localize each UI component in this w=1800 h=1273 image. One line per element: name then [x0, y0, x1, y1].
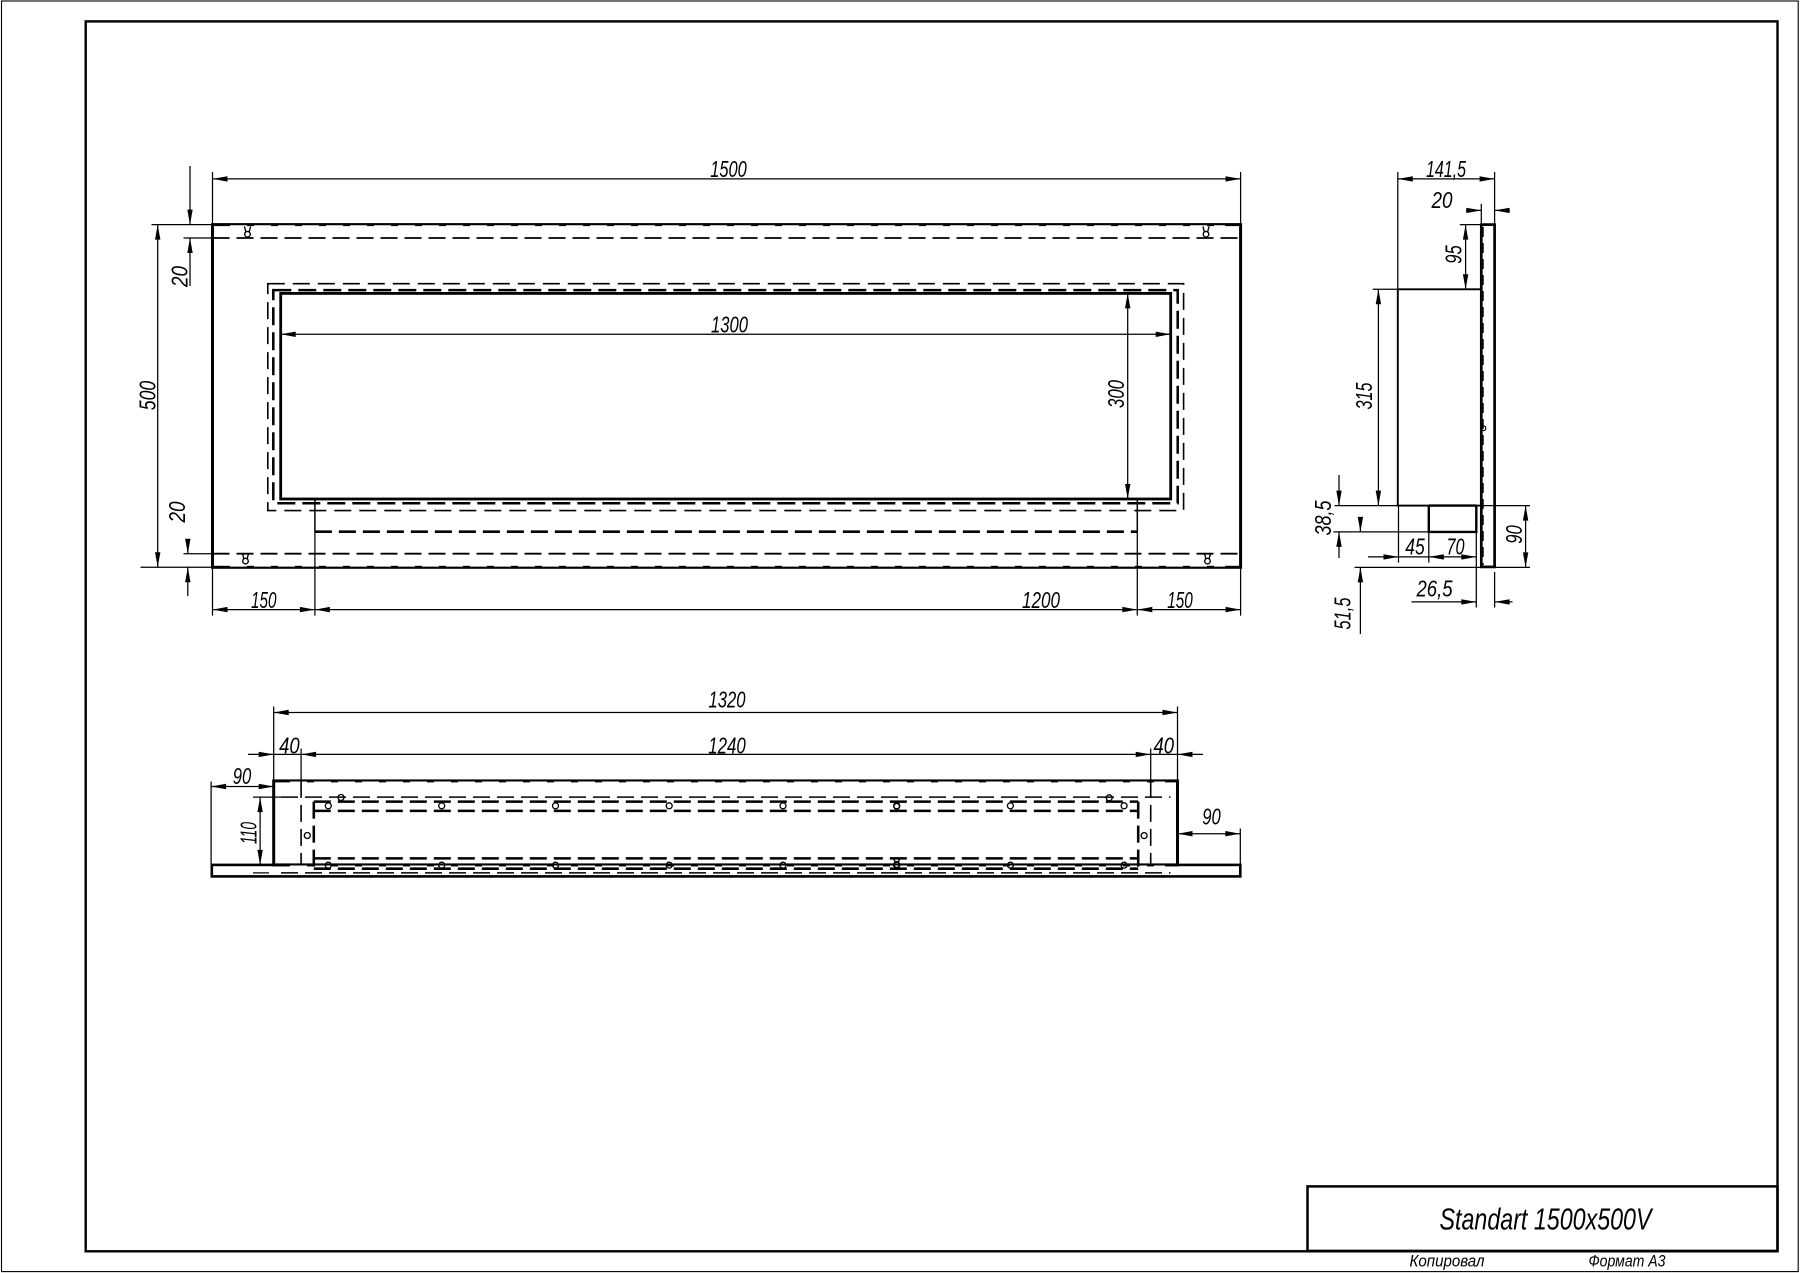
svg-text:110: 110: [236, 822, 262, 844]
svg-text:Копировал: Копировал: [1410, 1252, 1485, 1271]
svg-text:20: 20: [164, 502, 190, 524]
svg-text:315: 315: [1351, 382, 1377, 410]
svg-text:150: 150: [1167, 587, 1193, 613]
svg-text:95: 95: [1441, 245, 1467, 264]
svg-text:20: 20: [1431, 187, 1453, 213]
svg-text:38,5: 38,5: [1310, 500, 1336, 536]
svg-text:1300: 1300: [711, 312, 748, 338]
svg-text:Формат А3: Формат А3: [1589, 1252, 1666, 1271]
svg-text:500: 500: [134, 381, 160, 411]
svg-text:90: 90: [1202, 804, 1221, 830]
svg-text:141,5: 141,5: [1426, 156, 1467, 182]
svg-text:40: 40: [1154, 732, 1175, 758]
svg-text:150: 150: [251, 587, 277, 613]
svg-text:20: 20: [167, 266, 193, 288]
svg-text:90: 90: [1501, 525, 1527, 544]
svg-text:1500: 1500: [710, 156, 747, 182]
svg-text:1200: 1200: [1022, 587, 1060, 613]
svg-text:40: 40: [279, 732, 300, 758]
svg-text:300: 300: [1103, 380, 1129, 408]
svg-text:1320: 1320: [709, 687, 746, 713]
svg-text:26,5: 26,5: [1416, 575, 1454, 601]
svg-text:90: 90: [233, 763, 252, 789]
svg-text:70: 70: [1447, 533, 1465, 559]
svg-text:Standart 1500x500V: Standart 1500x500V: [1440, 1202, 1654, 1236]
svg-text:45: 45: [1405, 533, 1425, 559]
svg-text:51,5: 51,5: [1330, 597, 1356, 630]
svg-text:1240: 1240: [708, 732, 746, 758]
